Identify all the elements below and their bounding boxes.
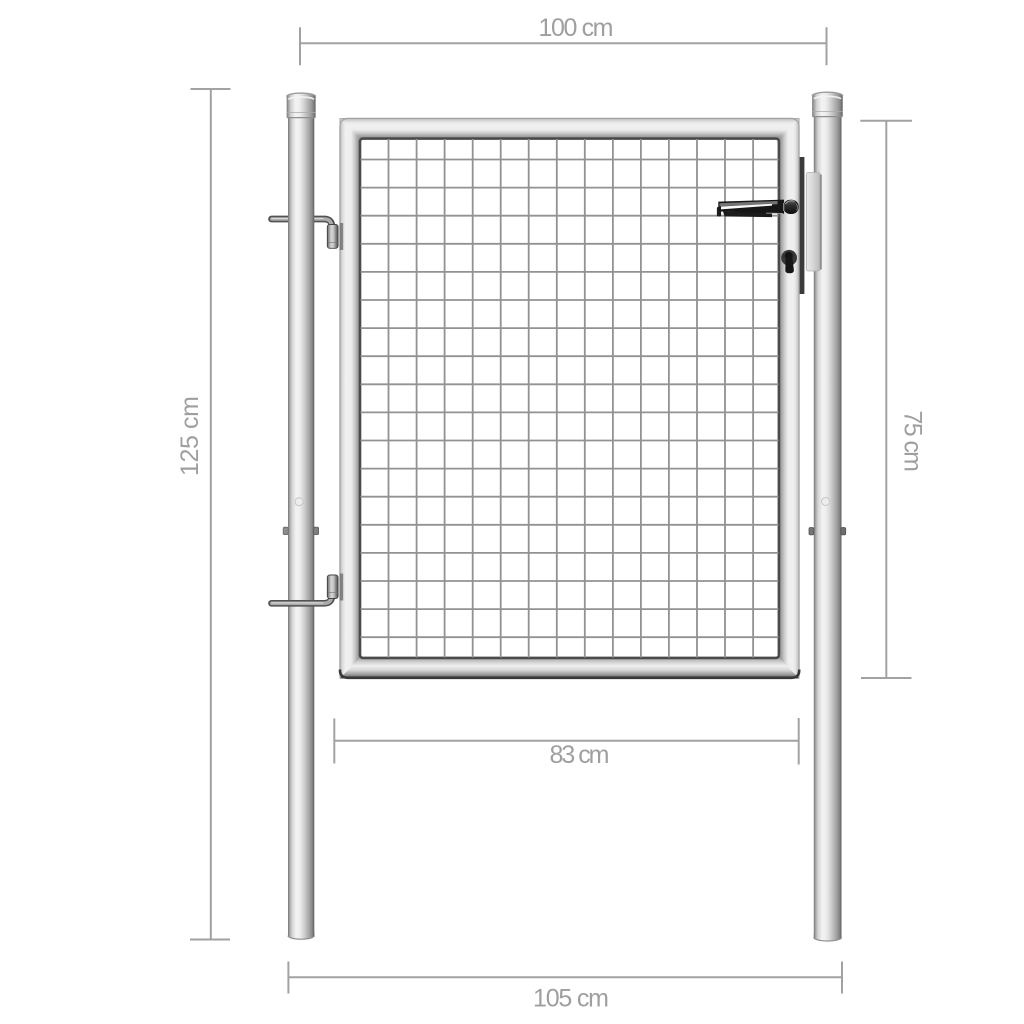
- svg-text:83 cm: 83 cm: [550, 741, 610, 769]
- svg-text:105 cm: 105 cm: [533, 984, 609, 1012]
- svg-text:75 cm: 75 cm: [898, 411, 926, 473]
- svg-text:125 cm: 125 cm: [176, 396, 204, 476]
- svg-text:100 cm: 100 cm: [539, 14, 614, 42]
